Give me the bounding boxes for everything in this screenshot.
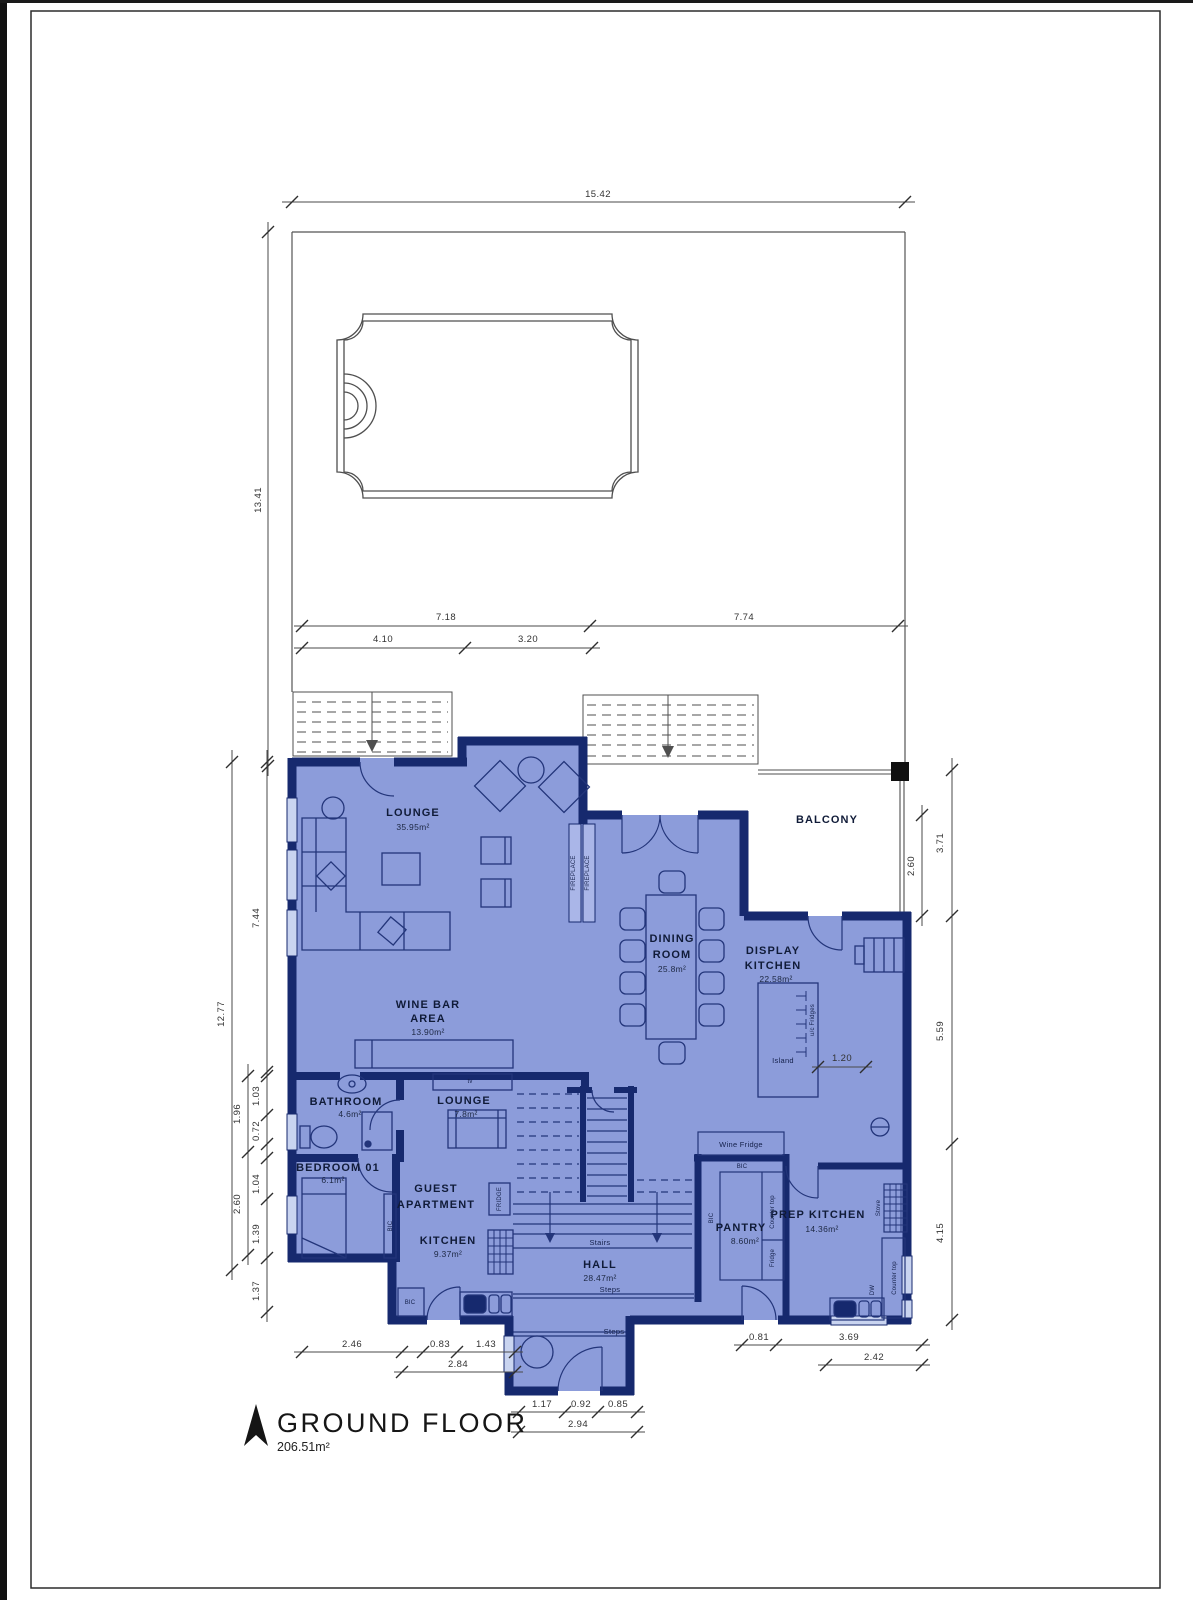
dim-left-d: 1.04 xyxy=(251,1174,262,1194)
north-arrow-icon xyxy=(244,1404,268,1446)
dim-left-total: 12.77 xyxy=(216,1001,227,1027)
room-label-bathroom: BATHROOM xyxy=(310,1096,383,1108)
dim-top-sub-left: 4.10 xyxy=(373,634,393,645)
room-label-guest-apartment-2: APARTMENT xyxy=(397,1199,475,1211)
site-boundary xyxy=(292,232,905,762)
room-area-wine-bar: 13.90m² xyxy=(411,1027,444,1037)
room-label-balcony: BALCONY xyxy=(796,814,858,826)
dim-left-a: 1.03 xyxy=(251,1086,262,1106)
fixture-label-wine-fridge: Wine Fridge xyxy=(719,1140,763,1149)
room-area-pantry: 8.60m² xyxy=(731,1236,759,1246)
fixture-label-stairs: Stairs xyxy=(590,1238,611,1247)
window-lounge-3 xyxy=(287,910,297,956)
room-label-prep-kitchen: PREP KITCHEN xyxy=(771,1209,866,1221)
fixture-label-uc-fridges: u/c Fridges xyxy=(810,1004,816,1036)
fixture-label-bic: BIC xyxy=(737,1164,748,1170)
deck-left-down-arrow-icon xyxy=(366,740,378,752)
dim-right-balcony-outer: 3.71 xyxy=(935,833,946,853)
fixture-label-bic: BIC xyxy=(709,1212,715,1223)
room-area-hall: 28.47m² xyxy=(583,1273,616,1283)
fixture-label-fridge: Fridge xyxy=(770,1248,776,1267)
dim-bottom-center-d: 2.94 xyxy=(568,1419,588,1430)
dim-bottom-right-b: 3.69 xyxy=(839,1332,859,1343)
room-label-lounge: LOUNGE xyxy=(386,807,440,819)
dim-top-left: 7.18 xyxy=(436,612,456,623)
room-area-prep-kitchen: 14.36m² xyxy=(805,1224,838,1234)
dim-left-e: 2.60 xyxy=(232,1194,243,1214)
dim-site-depth: 13.41 xyxy=(253,487,264,513)
fixture-label-steps: Steps xyxy=(600,1285,621,1294)
room-label-display-kitchen-1: DISPLAY xyxy=(746,945,800,957)
dim-left-c: 0.72 xyxy=(251,1121,262,1141)
fixture-label-island: Island xyxy=(772,1056,794,1065)
fixture-label-counter-top: Counter top xyxy=(892,1261,898,1295)
room-label-wine-bar-2: AREA xyxy=(410,1013,446,1025)
balcony-column xyxy=(891,762,909,781)
window-bathroom xyxy=(287,1114,297,1150)
room-area-display-kitchen: 22.58m² xyxy=(759,974,792,984)
balcony-boundary xyxy=(758,762,909,916)
dim-left-f: 1.39 xyxy=(251,1224,262,1244)
floor-plan-page: LOUNGE 35.95m² WINE BAR AREA 13.90m² DIN… xyxy=(0,0,1193,1600)
dim-right-balcony-inner: 2.60 xyxy=(906,856,917,876)
dim-bottom-left-b: 0.83 xyxy=(430,1339,450,1350)
fixture-label-steps: Steps xyxy=(604,1327,625,1336)
fixture-label-tv: tv xyxy=(467,1079,472,1085)
dim-site-width: 15.42 xyxy=(585,189,611,200)
dim-right-lower: 4.15 xyxy=(935,1223,946,1243)
fixture-label-counter-top: Counter top xyxy=(770,1195,776,1229)
dim-bottom-center-c: 0.85 xyxy=(608,1399,628,1410)
dim-bottom-right-c: 2.42 xyxy=(864,1352,884,1363)
fixture-label-fridge-tall: FRIDGE xyxy=(497,1187,503,1211)
dim-bottom-center-b: 0.92 xyxy=(571,1399,591,1410)
dim-top-right: 7.74 xyxy=(734,612,754,623)
room-label-guest-kitchen: KITCHEN xyxy=(420,1235,477,1247)
window-lounge-1 xyxy=(287,798,297,842)
fixture-label-fireplace: FIREPLACE xyxy=(571,855,577,890)
dim-top-sub-right: 3.20 xyxy=(518,634,538,645)
fixture-label-dw: DW xyxy=(870,1285,876,1296)
room-area-bathroom: 4.6m² xyxy=(338,1109,361,1119)
room-label-guest-lounge: LOUNGE xyxy=(437,1095,491,1107)
dim-left-b: 1.96 xyxy=(232,1104,243,1124)
room-area-guest-lounge: 7.8m² xyxy=(454,1109,477,1119)
window-lounge-2 xyxy=(287,850,297,900)
room-label-pantry: PANTRY xyxy=(716,1222,767,1234)
dim-left-g: 1.37 xyxy=(251,1281,262,1301)
window-prep-1 xyxy=(902,1256,912,1294)
dim-right-mid: 5.59 xyxy=(935,1021,946,1041)
room-area-bedroom: 6.1m² xyxy=(321,1175,344,1185)
pool xyxy=(337,314,638,498)
room-label-dining-1: DINING xyxy=(649,933,694,945)
fixture-label-bic: BIC xyxy=(388,1220,394,1231)
room-area-lounge: 35.95m² xyxy=(396,822,429,832)
dim-left-upper: 7.44 xyxy=(251,908,262,928)
title-block xyxy=(244,1404,268,1446)
dim-bottom-center-a: 1.17 xyxy=(532,1399,552,1410)
dim-bottom-left-d: 2.84 xyxy=(448,1359,468,1370)
dim-bottom-left-a: 2.46 xyxy=(342,1339,362,1350)
window-bedroom xyxy=(287,1196,297,1234)
deck-left xyxy=(293,692,452,756)
dim-bottom-right-a: 0.81 xyxy=(749,1332,769,1343)
room-label-bedroom: BEDROOM 01 xyxy=(296,1162,380,1174)
dim-bottom-left-c: 1.43 xyxy=(476,1339,496,1350)
floor-plan-drawing: LOUNGE 35.95m² WINE BAR AREA 13.90m² DIN… xyxy=(0,0,1193,1600)
page-title: GROUND FLOOR xyxy=(277,1408,528,1438)
fixture-label-fireplace: FIREPLACE xyxy=(585,855,591,890)
pool-steps-icon xyxy=(344,374,376,438)
window-prep-2 xyxy=(902,1300,912,1318)
room-area-guest-kitchen: 9.37m² xyxy=(434,1249,462,1259)
room-label-display-kitchen-2: KITCHEN xyxy=(745,960,802,972)
room-label-hall: HALL xyxy=(583,1259,617,1271)
room-label-wine-bar-1: WINE BAR xyxy=(396,999,460,1011)
room-label-dining-2: ROOM xyxy=(653,949,692,961)
deck-right xyxy=(583,695,758,764)
dim-island: 1.20 xyxy=(832,1053,852,1064)
room-label-guest-apartment-1: GUEST xyxy=(414,1183,457,1195)
page-total-area: 206.51m² xyxy=(277,1440,330,1454)
room-area-dining: 25.8m² xyxy=(658,964,686,974)
fixture-label-bic: BIC xyxy=(405,1300,416,1306)
fixture-label-stove: Stove xyxy=(876,1199,882,1216)
